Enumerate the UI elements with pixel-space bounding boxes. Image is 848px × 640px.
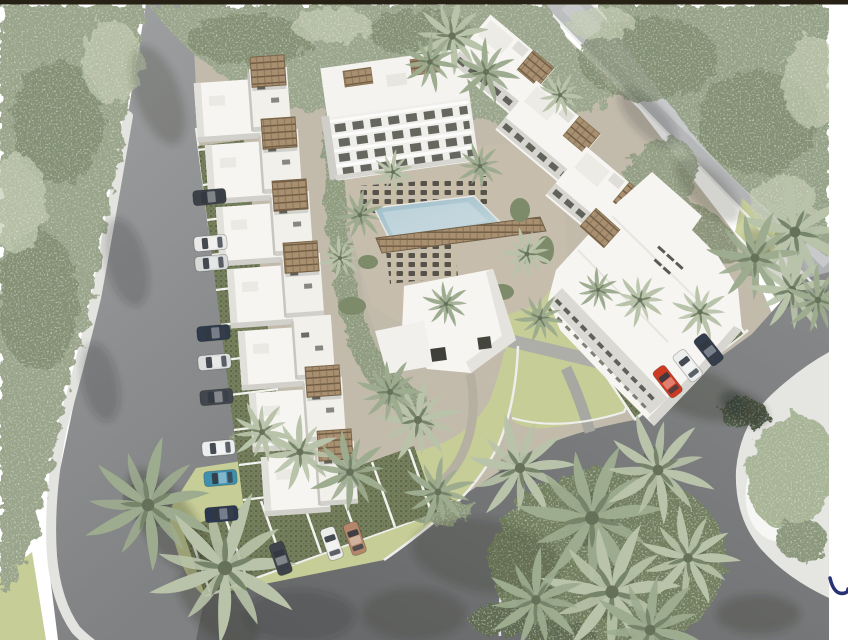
roof-pergola bbox=[305, 365, 341, 397]
aerial-render bbox=[0, 0, 848, 640]
tree-highlight bbox=[568, 8, 636, 40]
window bbox=[271, 97, 279, 103]
bush bbox=[510, 198, 530, 222]
roof-hatch bbox=[242, 281, 259, 292]
car bbox=[204, 505, 238, 523]
car bbox=[192, 188, 226, 206]
roof-pergola bbox=[261, 117, 297, 149]
tree-highlight bbox=[292, 8, 372, 44]
right-margin bbox=[829, 0, 848, 640]
car bbox=[194, 254, 228, 272]
window bbox=[304, 283, 312, 289]
window bbox=[315, 345, 323, 351]
roof-pergola bbox=[272, 179, 308, 211]
bush bbox=[358, 255, 378, 269]
car bbox=[201, 439, 235, 457]
roof-pergola bbox=[250, 55, 286, 87]
window bbox=[301, 332, 309, 338]
roof-pergola bbox=[283, 241, 319, 273]
render-canvas bbox=[0, 0, 848, 640]
window bbox=[282, 159, 290, 165]
car bbox=[193, 234, 227, 252]
car bbox=[199, 388, 233, 406]
window bbox=[293, 221, 301, 227]
bush bbox=[338, 297, 366, 315]
shadow bbox=[245, 590, 355, 640]
roof-pergola bbox=[343, 67, 373, 87]
shadow bbox=[716, 594, 800, 634]
clubhouse-entry bbox=[477, 336, 492, 350]
roof-hatch bbox=[209, 95, 226, 106]
shadow bbox=[362, 588, 466, 640]
clubhouse-entry bbox=[430, 347, 447, 362]
roof-hatch bbox=[253, 343, 270, 354]
top-letterbox-bar bbox=[0, 0, 848, 5]
roof-hatch bbox=[231, 219, 248, 230]
window bbox=[326, 407, 334, 413]
car bbox=[196, 324, 230, 342]
car bbox=[197, 353, 231, 371]
car bbox=[203, 469, 237, 487]
corner-shrub bbox=[776, 520, 828, 560]
roof-hatch bbox=[220, 157, 237, 168]
